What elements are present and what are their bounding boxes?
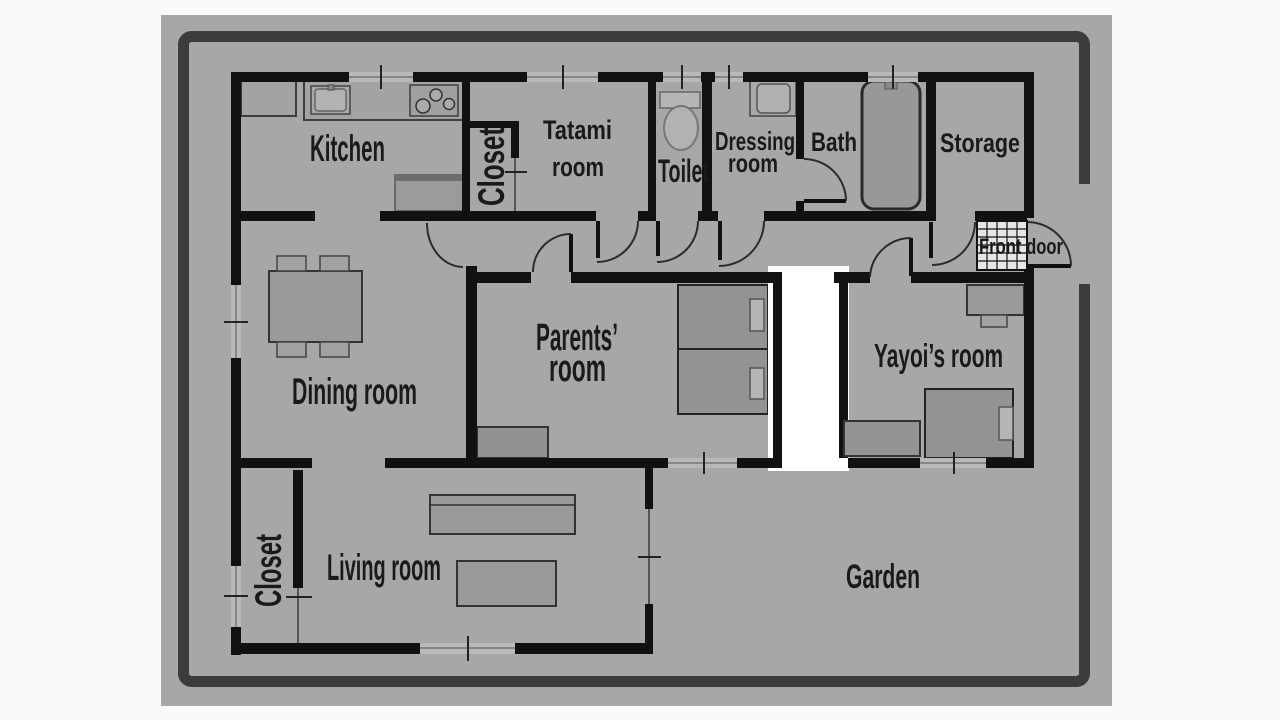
svg-text:Bath: Bath bbox=[811, 127, 857, 157]
svg-text:Toilet: Toilet bbox=[658, 153, 709, 189]
svg-text:room: room bbox=[549, 348, 606, 390]
svg-text:room: room bbox=[552, 152, 604, 182]
svg-text:Kitchen: Kitchen bbox=[310, 128, 385, 169]
svg-text:Closet: Closet bbox=[248, 534, 289, 607]
svg-text:Front door: Front door bbox=[979, 234, 1063, 259]
svg-text:Closet: Closet bbox=[471, 127, 512, 206]
svg-text:Living room: Living room bbox=[327, 547, 441, 588]
svg-text:Storage: Storage bbox=[940, 128, 1020, 158]
svg-text:Tatami: Tatami bbox=[543, 115, 612, 145]
svg-text:Garden: Garden bbox=[846, 558, 920, 596]
svg-text:room: room bbox=[728, 148, 778, 178]
svg-text:Dining room: Dining room bbox=[292, 371, 417, 412]
svg-text:Yayoi’s room: Yayoi’s room bbox=[874, 337, 1003, 374]
